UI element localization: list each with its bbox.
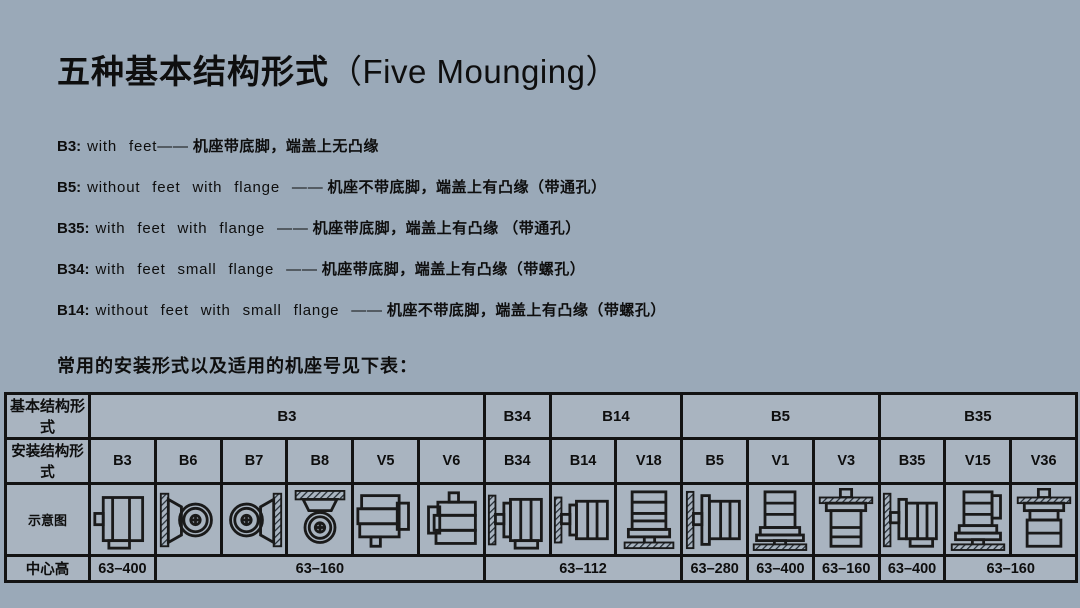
definition-code: B14:: [57, 302, 90, 319]
diagram-cell-v5: [353, 484, 419, 556]
diagram-cell-b35: [879, 484, 945, 556]
diagram-cell-b6: [155, 484, 221, 556]
group-cell-b34: B34: [484, 394, 550, 439]
definition-english: without feet with small flange ——: [96, 302, 383, 319]
definition-code: B34:: [57, 261, 90, 278]
height-cell-v1: 63–400: [748, 556, 814, 582]
mounting-definitions-list: B3:with feet——机座带底脚，端盖上无凸缘 B5:without fe…: [57, 126, 666, 331]
diagram-cell-v36: [1011, 484, 1077, 556]
definition-chinese: 机座带底脚，端盖上有凸缘 （带通孔）: [313, 220, 581, 237]
height-cell-b3: 63–400: [90, 556, 156, 582]
diagram-cell-v1: [748, 484, 814, 556]
table-row-center-height: 中心高 63–400 63–160 63–112 63–280 63–400 6…: [6, 556, 1077, 582]
motor-flange-feet-down-icon: [948, 488, 1008, 552]
definition-chinese: 机座带底脚，端盖上有凸缘（带螺孔）: [322, 261, 586, 278]
definition-chinese: 机座带底脚，端盖上无凸缘: [193, 138, 379, 155]
form-cell-v6: V6: [418, 439, 484, 484]
diagram-cell-v3: [813, 484, 879, 556]
diagram-cell-v18: [616, 484, 682, 556]
form-cell-b14: B14: [550, 439, 616, 484]
table-row-mount-forms: 安装结构形式 B3 B6 B7 B8 V5 V6 B34 B14 V18 B5 …: [6, 439, 1077, 484]
motor-end-wall-left-icon: [158, 488, 218, 552]
motor-end-ceiling-icon: [290, 488, 350, 552]
form-cell-v5: V5: [353, 439, 419, 484]
definition-b5: B5:without feet with flange ——机座不带底脚，端盖上…: [57, 167, 666, 208]
form-cell-b35: B35: [879, 439, 945, 484]
form-cell-b5: B5: [682, 439, 748, 484]
page-title-english: （Five Mounging）: [329, 53, 619, 90]
motor-wall-flange-feet-icon: [882, 488, 942, 552]
motor-end-wall-right-icon: [224, 488, 284, 552]
motor-vertical-shaft-up-icon: [421, 488, 481, 552]
diagram-cell-b3: [90, 484, 156, 556]
table-intro-text: 常用的安装形式以及适用的机座号见下表：: [57, 352, 418, 378]
height-cell-v3: 63–160: [813, 556, 879, 582]
form-cell-v15: V15: [945, 439, 1011, 484]
definition-chinese: 机座不带底脚，端盖上有凸缘（带通孔）: [328, 179, 607, 196]
page-title: 五种基本结构形式（Five Mounging）: [57, 52, 619, 92]
group-cell-b5: B5: [682, 394, 879, 439]
motor-flange-down-shaft-down-icon: [750, 488, 810, 552]
definition-code: B35:: [57, 220, 90, 237]
group-cell-b14: B14: [550, 394, 682, 439]
height-cell-b34-v18: 63–112: [484, 556, 681, 582]
motor-flange-feet-up-icon: [1014, 488, 1074, 552]
motor-wall-small-flange-icon: [553, 488, 613, 552]
page-title-chinese: 五种基本结构形式: [57, 53, 329, 90]
row-label-center-height: 中心高: [6, 556, 90, 582]
group-cell-b3: B3: [90, 394, 485, 439]
motor-side-feet-icon: [92, 488, 152, 552]
diagram-cell-b5: [682, 484, 748, 556]
definition-english: with feet small flange ——: [96, 261, 318, 278]
form-cell-b3: B3: [90, 439, 156, 484]
row-label-basic-structure: 基本结构形式: [6, 394, 90, 439]
table-row-diagrams: 示意图: [6, 484, 1077, 556]
height-cell-b6-v6: 63–160: [155, 556, 484, 582]
form-cell-b34: B34: [484, 439, 550, 484]
definition-chinese: 机座不带底脚，端盖上有凸缘（带螺孔）: [387, 302, 666, 319]
definition-english: without feet with flange ——: [87, 179, 323, 196]
height-cell-b5: 63–280: [682, 556, 748, 582]
diagram-cell-v6: [418, 484, 484, 556]
form-cell-v36: V36: [1011, 439, 1077, 484]
height-cell-v15-v36: 63–160: [945, 556, 1077, 582]
definition-code: B3:: [57, 138, 81, 155]
motor-flange-down-floor-icon: [619, 488, 679, 552]
diagram-cell-v15: [945, 484, 1011, 556]
form-cell-v3: V3: [813, 439, 879, 484]
motor-wall-flange-icon: [685, 488, 745, 552]
form-cell-v1: V1: [748, 439, 814, 484]
definition-english: with feet with flange ——: [96, 220, 309, 237]
group-cell-b35: B35: [879, 394, 1076, 439]
motor-flange-up-shaft-up-icon: [816, 488, 876, 552]
slide: 五种基本结构形式（Five Mounging） B3:with feet——机座…: [0, 0, 1080, 608]
height-cell-b35: 63–400: [879, 556, 945, 582]
definition-b35: B35:with feet with flange ——机座带底脚，端盖上有凸缘…: [57, 208, 666, 249]
form-cell-b7: B7: [221, 439, 287, 484]
form-cell-b6: B6: [155, 439, 221, 484]
definition-b34: B34:with feet small flange ——机座带底脚，端盖上有凸…: [57, 249, 666, 290]
definition-code: B5:: [57, 179, 81, 196]
diagram-cell-b7: [221, 484, 287, 556]
form-cell-b8: B8: [287, 439, 353, 484]
row-label-mount-forms: 安装结构形式: [6, 439, 90, 484]
motor-vertical-shaft-down-icon: [356, 488, 416, 552]
definition-b14: B14:without feet with small flange ——机座不…: [57, 290, 666, 331]
form-cell-v18: V18: [616, 439, 682, 484]
diagram-cell-b34: [484, 484, 550, 556]
table-row-basic-structure: 基本结构形式 B3 B34 B14 B5 B35: [6, 394, 1077, 439]
diagram-cell-b14: [550, 484, 616, 556]
row-label-diagrams: 示意图: [6, 484, 90, 556]
motor-wall-small-flange-feet-icon: [487, 488, 547, 552]
definition-english: with feet——: [87, 138, 189, 155]
mounting-forms-table: 基本结构形式 B3 B34 B14 B5 B35 安装结构形式 B3 B6 B7…: [4, 392, 1078, 583]
definition-b3: B3:with feet——机座带底脚，端盖上无凸缘: [57, 126, 666, 167]
diagram-cell-b8: [287, 484, 353, 556]
